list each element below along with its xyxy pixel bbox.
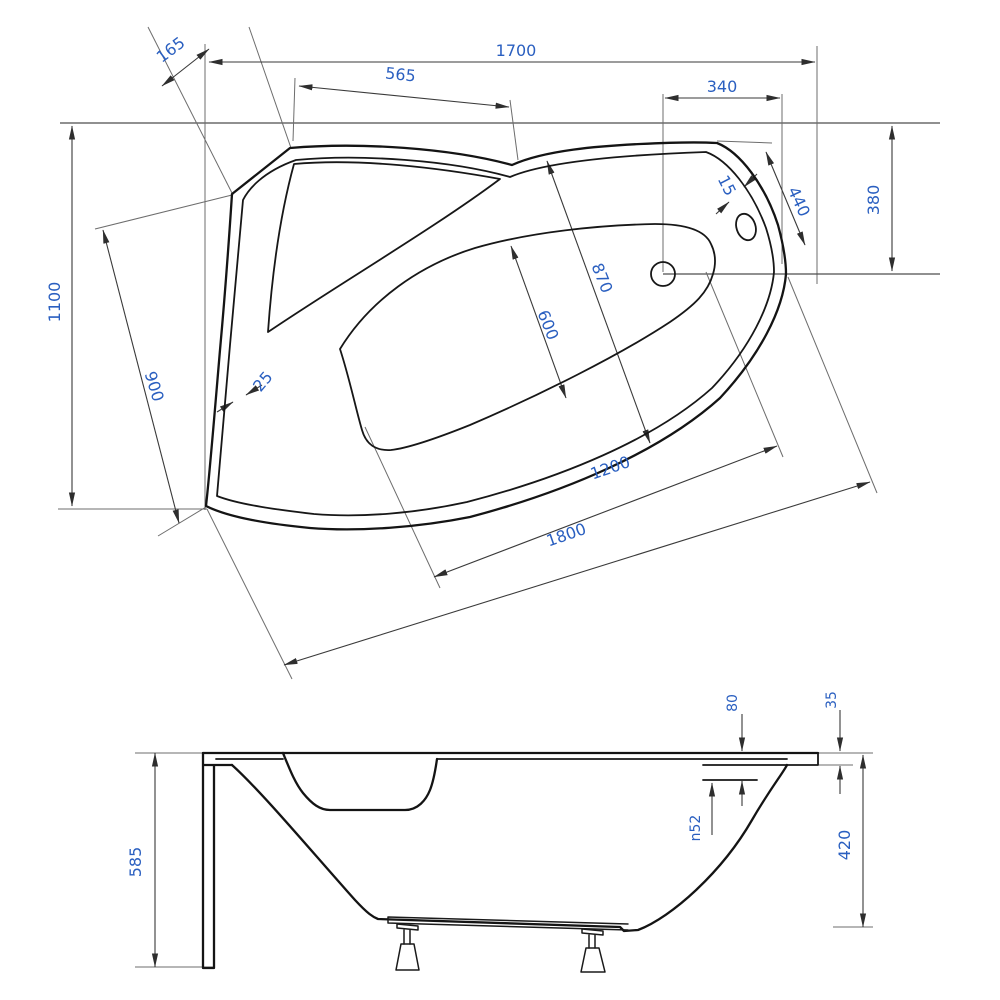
foot-right-stem — [589, 935, 595, 948]
plan-view: 1700 165 565 340 1100 900 25 870 600 15 … — [45, 27, 940, 679]
extension-440-top — [717, 141, 772, 143]
foot-left-cone — [396, 944, 419, 970]
side-dimension-labels: 585 80 35 n52 420 — [126, 691, 854, 877]
foot-left-stem — [404, 930, 410, 944]
technical-drawing-canvas: 1700 165 565 340 1100 900 25 870 600 15 … — [0, 0, 1000, 1000]
dim-label-1100: 1100 — [45, 282, 64, 323]
dim-label-n52: n52 — [688, 815, 704, 842]
dim-label-565: 565 — [384, 63, 416, 85]
dimension-line-900 — [103, 230, 179, 523]
dim-label-165: 165 — [153, 33, 189, 67]
extension-900-bottom — [158, 507, 206, 536]
plan-dimension-lines — [72, 49, 892, 665]
dimension-arrow-15-lower — [716, 202, 729, 214]
extension-1800-right — [788, 277, 877, 493]
dim-label-340: 340 — [707, 77, 738, 96]
foot-left-plate — [397, 924, 418, 930]
headrest-ledge-edge — [268, 162, 500, 332]
extension-1200-right — [706, 272, 783, 457]
dim-label-35: 35 — [824, 691, 840, 709]
dimension-line-870 — [547, 161, 650, 443]
dim-label-585: 585 — [126, 847, 145, 878]
dim-label-600: 600 — [534, 307, 563, 342]
extension-565-right — [510, 100, 518, 160]
plan-extension-lines — [58, 27, 940, 679]
extension-565-left — [293, 78, 295, 141]
shell-underside — [232, 765, 787, 931]
dim-label-900: 900 — [141, 369, 168, 404]
extension-1200-left — [365, 427, 440, 588]
foot-left — [396, 924, 419, 970]
overflow-hole — [733, 211, 759, 243]
bathtub-plan — [206, 142, 786, 529]
side-dimension-lines — [155, 710, 863, 967]
plan-dimension-labels: 1700 165 565 340 1100 900 25 870 600 15 … — [45, 33, 883, 551]
bowl-outline — [340, 224, 715, 450]
foot-right — [581, 929, 605, 972]
side-extension-lines — [135, 753, 873, 967]
drawing-sheet: 1700 165 565 340 1100 900 25 870 600 15 … — [0, 0, 1000, 1000]
dimension-line-1800 — [284, 482, 870, 665]
apron-panel — [203, 753, 232, 968]
extension-1800-left — [207, 509, 292, 679]
bathtub-side — [203, 753, 818, 972]
tub-inner-rim — [217, 152, 774, 515]
inner-basin-dip — [283, 753, 437, 810]
dim-label-80: 80 — [725, 694, 741, 712]
dim-label-1700: 1700 — [496, 41, 537, 60]
dim-label-1800: 1800 — [544, 519, 589, 550]
dim-label-420: 420 — [835, 830, 854, 861]
extension-corner-short-diagonal — [249, 27, 291, 148]
tub-outer-outline — [206, 142, 786, 529]
side-view: 585 80 35 n52 420 — [126, 691, 873, 972]
dim-label-870: 870 — [588, 260, 617, 295]
dimension-line-565 — [299, 86, 509, 107]
dim-label-1200: 1200 — [588, 452, 633, 483]
foot-right-cone — [581, 948, 605, 972]
dim-label-380: 380 — [864, 185, 883, 216]
extension-900-top — [95, 195, 232, 229]
dim-label-440: 440 — [784, 184, 814, 220]
